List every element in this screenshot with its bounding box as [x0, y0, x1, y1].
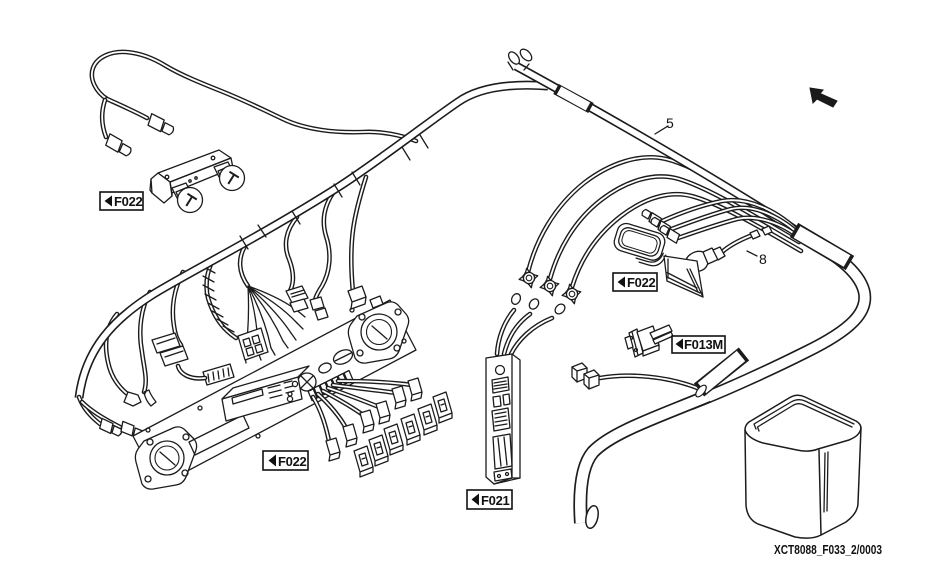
svg-text:F022: F022	[114, 194, 143, 209]
svg-text:XCT8088_F033_2/0003: XCT8088_F033_2/0003	[774, 542, 882, 557]
svg-text:F022: F022	[627, 275, 656, 290]
svg-text:F021: F021	[481, 493, 510, 508]
svg-text:5: 5	[666, 115, 674, 131]
svg-text:F022: F022	[278, 454, 307, 469]
svg-text:8: 8	[759, 251, 767, 267]
svg-text:F013M: F013M	[684, 337, 723, 352]
